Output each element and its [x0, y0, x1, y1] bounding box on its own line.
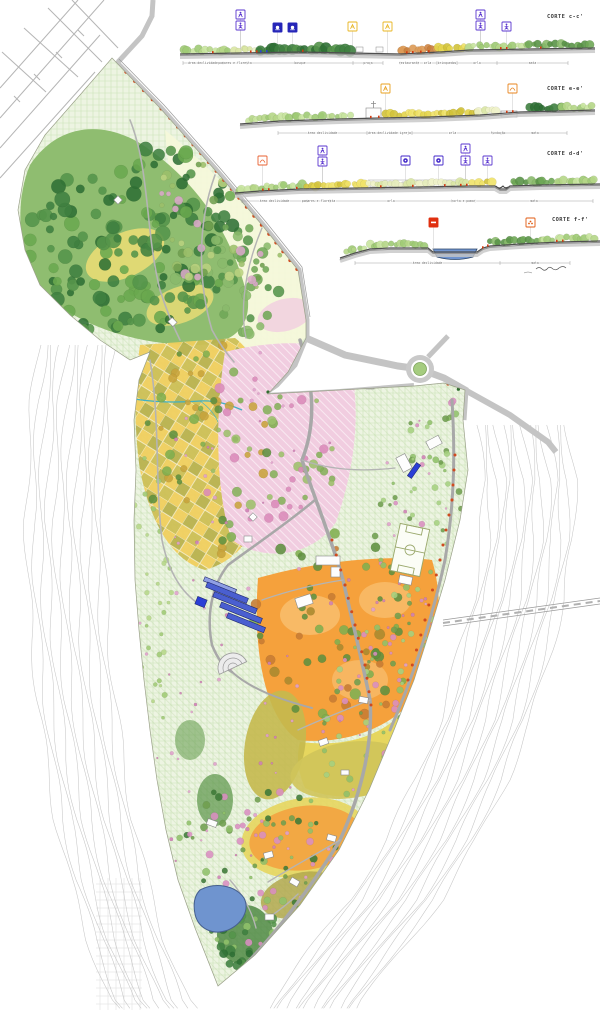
- section-red-mark: [540, 46, 542, 48]
- dimension-label: área declividade: [308, 131, 338, 135]
- slide-icon: [258, 156, 267, 165]
- plaza-structure: [356, 47, 363, 52]
- cycling-icon: [288, 23, 297, 32]
- section-red-mark: [444, 184, 446, 186]
- dimension-label: área declividade: [260, 199, 290, 203]
- section-corte-c: CORTE c-c' área declividadepomares e flo…: [180, 10, 595, 65]
- dimension-label: área declividade igreja: [368, 131, 411, 135]
- playground-icon: [381, 84, 390, 93]
- roundabout: [406, 355, 434, 383]
- gym-icon: [502, 22, 511, 31]
- dimension-line: área declividadepomares e florestabosque…: [183, 61, 383, 65]
- dimension-label: praça: [363, 61, 372, 65]
- section-red-mark: [412, 185, 414, 187]
- barbecue-icon: [526, 218, 535, 227]
- drawing-sheet: CORTE c-c' área declividadepomares e flo…: [0, 0, 600, 1010]
- playground-icon: [383, 22, 392, 31]
- gym-icon: [318, 157, 327, 166]
- section-red-mark: [370, 116, 372, 118]
- exit-road: [118, 0, 153, 62]
- hut: [265, 914, 274, 920]
- cycling-icon: [273, 23, 282, 32]
- court-icon: [434, 156, 443, 165]
- athletics-icon: [318, 146, 327, 155]
- dimension-line: restauranteorlabrinquedosorlamata: [399, 61, 568, 65]
- section-red-mark: [302, 50, 304, 52]
- dimension-label: mata: [531, 131, 539, 135]
- section-red-mark: [420, 51, 422, 53]
- signature-scribble: [536, 267, 566, 271]
- section-red-mark: [487, 244, 489, 246]
- roundabout-stub-road: [428, 336, 448, 357]
- dimension-label: orla: [449, 131, 457, 135]
- picnic-icon: [429, 218, 438, 227]
- dimension-line: área declividadepomares e florestaorlaho…: [242, 199, 593, 203]
- gym-icon: [236, 21, 245, 30]
- dimension-label: área declividade: [413, 261, 443, 265]
- dimension-label: orla: [387, 199, 395, 203]
- athletics-icon: [461, 144, 470, 153]
- section-red-mark: [506, 111, 508, 113]
- dimension-label: mata: [531, 261, 539, 265]
- chapel: [366, 101, 381, 118]
- dimension-label: restaurante: [399, 61, 420, 65]
- kiosk: [301, 382, 308, 388]
- section-corte-f: CORTE f-f' área declividademata: [340, 217, 600, 273]
- gym-icon: [476, 21, 485, 30]
- section-red-mark: [428, 50, 430, 52]
- dimension-label: pomares e floresta: [218, 61, 252, 65]
- section-blue-mark: [260, 50, 262, 52]
- section-red-mark: [406, 51, 408, 53]
- section-red-mark: [262, 189, 264, 191]
- section-red-mark: [412, 51, 414, 53]
- cultural-building: [331, 567, 340, 577]
- section-red-mark: [482, 246, 484, 248]
- dimension-label: orla: [473, 61, 481, 65]
- dimension-line: área declividadeárea declividade igrejao…: [278, 131, 567, 135]
- section-corte-e: CORTE e-e' área declividadeárea declivid…: [240, 84, 595, 135]
- hut: [359, 696, 369, 703]
- section-red-mark: [506, 47, 508, 49]
- section-red-mark: [460, 184, 462, 186]
- section-title: CORTE f-f': [552, 217, 588, 223]
- section-red-mark: [556, 240, 558, 242]
- dimension-label: área declividade: [188, 61, 218, 65]
- dimension-label: mata: [530, 199, 538, 203]
- dimension-label: mata: [529, 61, 537, 65]
- court-icon: [401, 156, 410, 165]
- signature-underline: [524, 272, 532, 273]
- section-red-mark: [378, 116, 380, 118]
- descending-road: [465, 390, 556, 452]
- section-title: CORTE e-e': [547, 86, 583, 92]
- hut: [341, 770, 349, 775]
- cultural-building: [316, 556, 340, 565]
- section-red-mark: [466, 184, 468, 186]
- section-red-mark: [562, 240, 564, 242]
- slide-icon: [508, 84, 517, 93]
- dimension-label: orla: [424, 61, 432, 65]
- dimension-label: horta e pomar: [451, 199, 475, 203]
- dimension-label: bosque: [294, 61, 305, 65]
- section-title: CORTE c-c': [547, 14, 583, 20]
- pavilion: [244, 536, 252, 542]
- dark-grove-patch: [175, 720, 205, 760]
- section-red-mark: [296, 187, 298, 189]
- athletics-icon: [236, 10, 245, 19]
- playground-icon: [348, 22, 357, 31]
- section-red-mark: [512, 110, 514, 112]
- athletics-icon: [476, 10, 485, 19]
- survey-grid: [96, 878, 142, 1010]
- gym-icon: [483, 156, 492, 165]
- plaza-structure: [376, 47, 383, 52]
- section-title: CORTE d-d': [547, 151, 583, 157]
- dimension-line: área declividademata: [355, 261, 570, 265]
- dimension-label: brinquedos: [438, 61, 457, 65]
- section-red-mark: [380, 185, 382, 187]
- section-red-mark: [256, 50, 258, 52]
- dimension-label: pomares e floresta: [302, 199, 336, 203]
- section-red-mark: [212, 51, 214, 53]
- park-masterplan-svg: CORTE c-c' área declividadepomares e flo…: [0, 0, 600, 1010]
- gym-icon: [461, 156, 470, 165]
- section-red-mark: [500, 47, 502, 49]
- section-red-mark: [268, 188, 270, 190]
- section-red-mark: [250, 50, 252, 52]
- section-blue-mark: [266, 50, 268, 52]
- dimension-label: fundação: [491, 131, 506, 135]
- section-corte-d: CORTE d-d' área declividadepomares e flo…: [235, 144, 600, 203]
